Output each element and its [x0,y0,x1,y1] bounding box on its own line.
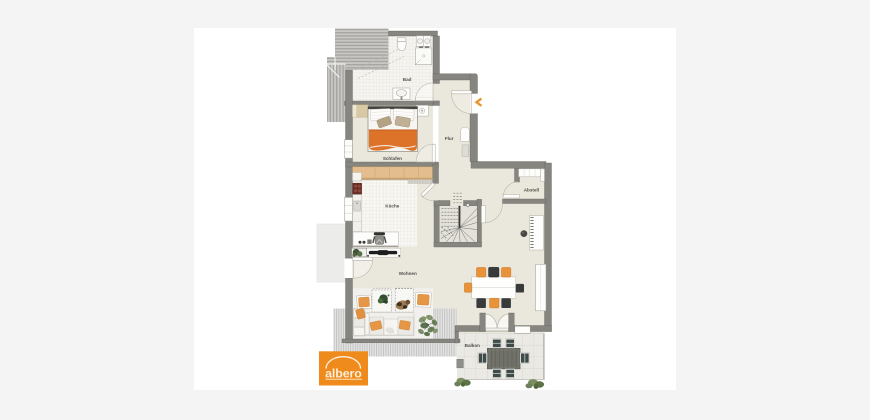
svg-text:Schlafen: Schlafen [383,156,402,161]
svg-text:Abstell: Abstell [524,188,539,193]
svg-text:Flur: Flur [445,136,454,141]
svg-text:Küche: Küche [385,203,399,208]
svg-text:Balkon: Balkon [465,343,481,348]
svg-text:Bad: Bad [403,77,412,82]
svg-text:Wohnen: Wohnen [399,271,417,276]
svg-text:albero: albero [325,366,362,380]
